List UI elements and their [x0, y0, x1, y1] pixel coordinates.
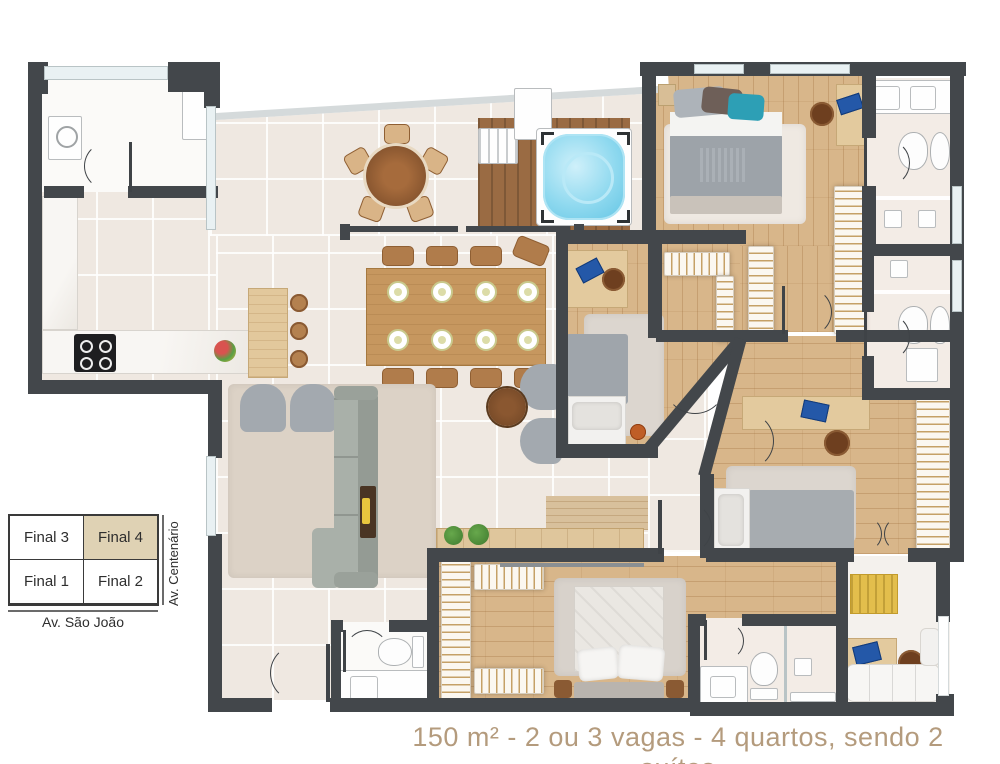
masterbath-toilet-tank: [750, 688, 778, 700]
legend-cell-final-1[interactable]: Final 1: [10, 560, 83, 603]
sofa-end: [334, 572, 378, 588]
door-arc: [660, 502, 712, 554]
shower-base: [790, 692, 836, 702]
place-setting: [431, 329, 453, 351]
entrance-door-arc: [270, 644, 328, 702]
living-armchair: [240, 384, 286, 432]
window: [694, 64, 744, 74]
door-arc: [345, 630, 389, 674]
wood-platform: [546, 496, 648, 530]
wall: [862, 186, 876, 248]
bedroom3-chair: [824, 430, 850, 456]
bbq-grill: [478, 128, 518, 164]
wall: [688, 614, 700, 710]
door-arc: [866, 140, 910, 186]
wall: [936, 558, 950, 622]
master-pillow: [617, 644, 666, 682]
suite1-bed-foot: [670, 196, 782, 214]
suite1-pillow-teal: [727, 93, 765, 121]
plan-caption: 150 m² - 2 ou 3 vagas - 4 quartos, sendo…: [378, 722, 978, 764]
bath1-sink: [910, 86, 936, 110]
bath1-bidet: [930, 132, 950, 170]
place-setting: [387, 281, 409, 303]
office-balcony-door: [938, 616, 949, 696]
door-arc: [664, 352, 726, 414]
wall: [208, 380, 222, 458]
master-pillow: [576, 646, 619, 682]
sliding-door-stub: [574, 224, 584, 240]
wall: [862, 74, 876, 138]
wall: [208, 534, 222, 712]
wall: [862, 388, 952, 400]
sliding-door-stub: [340, 224, 350, 240]
wall: [44, 186, 84, 198]
wall: [642, 62, 656, 234]
wall: [331, 620, 343, 632]
door-arc: [784, 288, 832, 336]
legend-cell-final-4[interactable]: Final 4: [84, 516, 157, 559]
wall: [430, 548, 664, 562]
place-setting: [475, 329, 497, 351]
wall: [836, 558, 848, 710]
place-setting: [517, 329, 539, 351]
wall: [648, 244, 662, 338]
wall: [656, 330, 788, 342]
bedroom3-pillow: [718, 494, 744, 546]
legend-cell-final-2[interactable]: Final 2: [84, 560, 157, 603]
bath1-shower-head: [884, 210, 902, 228]
spa-inner-ring: [562, 152, 614, 204]
place-setting: [431, 281, 453, 303]
bath1-shower-head: [918, 210, 936, 228]
shower-glass: [784, 622, 787, 704]
yellow-bench: [850, 574, 898, 614]
bedroom3-closet: [916, 396, 950, 552]
bath1-sink: [874, 86, 900, 110]
kitchen-counter-left: [42, 196, 78, 330]
legend-cell-final-3[interactable]: Final 3: [10, 516, 83, 559]
lavabo-toilet-tank: [412, 636, 424, 668]
masterbath-sink: [710, 676, 736, 698]
bar-stool: [290, 322, 308, 340]
wall: [556, 230, 746, 244]
bar-stool: [290, 294, 308, 312]
double-door-arc: [854, 518, 882, 550]
window: [770, 64, 850, 74]
tv-shelf: [500, 563, 644, 567]
suite1-bed-pattern: [700, 148, 748, 182]
bedside-mat: [666, 680, 684, 698]
wall: [690, 702, 954, 716]
window: [206, 106, 216, 230]
wall: [742, 614, 840, 626]
shower-head: [794, 658, 812, 676]
potted-plant: [468, 524, 489, 545]
double-door-arc: [884, 518, 912, 550]
breakfast-bar: [248, 288, 288, 378]
wall: [862, 244, 952, 256]
bath2-partition: [864, 290, 952, 294]
closet: [748, 246, 774, 336]
bedside-mat: [554, 680, 572, 698]
window: [206, 456, 216, 536]
fruit-bowl: [214, 340, 236, 362]
basketball: [630, 424, 646, 440]
street-axis-right: [162, 515, 164, 605]
place-setting: [475, 281, 497, 303]
master-closet: [474, 564, 544, 590]
bath2-sink: [906, 348, 938, 382]
lavabo-sink: [350, 676, 378, 700]
wall: [128, 186, 218, 198]
street-label-sao-joao: Av. São João: [8, 614, 158, 630]
wall: [950, 62, 964, 562]
bath2-shower-head: [890, 260, 908, 278]
place-setting: [387, 329, 409, 351]
wall: [28, 380, 222, 394]
door-arc: [706, 622, 744, 660]
dining-chair: [470, 246, 502, 266]
master-closet: [474, 668, 544, 694]
office-sofa: [846, 664, 940, 702]
floor-plan-page: Final 3 Final 4 Final 1 Final 2 Av. Cent…: [0, 0, 1000, 764]
cooktop-burner: [80, 340, 93, 353]
washing-machine-door: [56, 126, 78, 148]
cooktop-burner: [99, 357, 112, 370]
wall: [556, 242, 568, 458]
door-arc: [866, 314, 910, 360]
bedroom2-bed-duvet: [566, 334, 628, 404]
bath1-partition: [864, 196, 952, 200]
masterbath-toilet: [750, 652, 778, 686]
sliding-door-rail: [466, 226, 570, 232]
master-closet: [441, 558, 471, 700]
bar-stool: [290, 350, 308, 368]
wall: [28, 76, 42, 394]
wall: [427, 548, 439, 710]
closet: [664, 252, 730, 276]
console-accent: [362, 498, 370, 524]
window: [952, 186, 962, 244]
spa-corner-mark: [541, 210, 554, 223]
wall: [862, 256, 874, 312]
wall: [936, 694, 954, 714]
unit-legend-table: Final 3 Final 4 Final 1 Final 2: [8, 514, 159, 606]
street-axis-bottom: [8, 610, 158, 612]
sliding-door-rail: [350, 226, 458, 232]
window: [44, 66, 168, 80]
spa-corner-mark: [617, 210, 630, 223]
window: [952, 260, 962, 312]
dining-chair: [382, 246, 414, 266]
potted-plant: [444, 526, 463, 545]
balcony-round-table: [366, 146, 426, 206]
dining-chair: [426, 246, 458, 266]
sideboard: [436, 528, 644, 550]
unit-legend: Final 3 Final 4 Final 1 Final 2 Av. Cent…: [8, 514, 181, 630]
office-cushion: [920, 628, 940, 666]
bedroom3-bed-duvet: [748, 490, 854, 552]
door-arc: [716, 412, 774, 470]
wall: [330, 698, 692, 712]
dining-chair: [470, 368, 502, 388]
wall: [862, 356, 874, 392]
coffee-table: [488, 388, 526, 426]
spa-corner-mark: [617, 132, 630, 145]
place-setting: [517, 281, 539, 303]
cooktop-burner: [99, 340, 112, 353]
wall: [208, 698, 272, 712]
door-arc: [84, 142, 132, 190]
living-armchair: [290, 384, 336, 432]
bedroom2-chair: [602, 268, 625, 291]
spa-corner-mark: [541, 132, 554, 145]
balcony-chair: [384, 124, 410, 144]
sofa-armrest: [334, 386, 378, 400]
street-label-centenario: Av. Centenário: [166, 514, 181, 606]
suite1-chair: [810, 102, 834, 126]
cooktop-burner: [80, 357, 93, 370]
wall: [331, 620, 341, 710]
wall: [706, 548, 854, 562]
bedroom2-pillow: [572, 402, 622, 430]
wall: [204, 62, 220, 108]
